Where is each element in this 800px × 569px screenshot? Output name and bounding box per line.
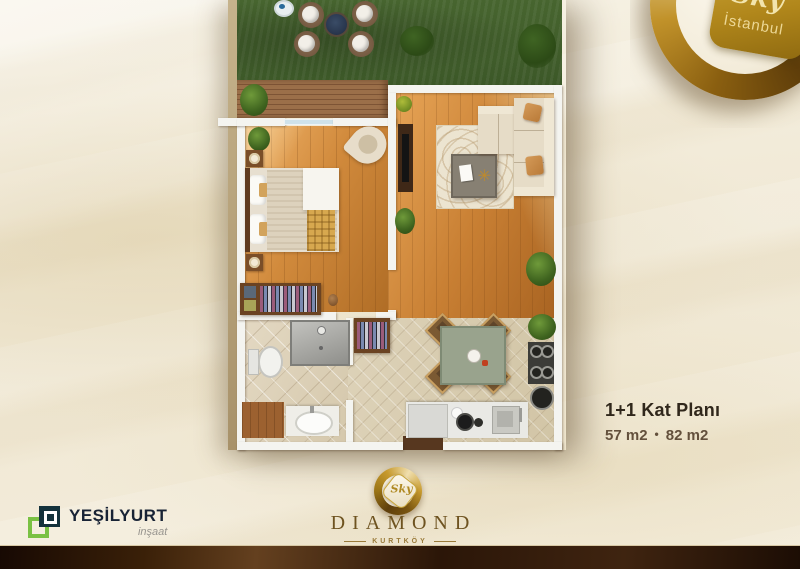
wicker-chair — [294, 31, 320, 57]
divider-line — [434, 541, 456, 542]
faucet-icon — [310, 406, 314, 413]
nightstand — [246, 150, 263, 167]
wicker-chair — [348, 31, 374, 57]
wall-bathroom-lower — [346, 400, 353, 443]
table-lamp-icon — [249, 257, 260, 268]
folded-clothes — [244, 300, 256, 311]
deck-plant — [240, 84, 268, 116]
yesilyurt-squares-icon — [28, 506, 60, 538]
round-basin — [530, 386, 554, 410]
area-separator: • — [655, 427, 659, 441]
double-bed — [245, 168, 339, 252]
floor-plan: ✳ — [228, 0, 566, 450]
table-decor — [482, 360, 488, 366]
plant-decor-icon: ✳ — [478, 166, 491, 186]
garden-side-table — [274, 0, 294, 17]
dark-square-icon — [39, 506, 60, 527]
toilet-bowl — [258, 346, 283, 378]
living-corner-plant — [526, 252, 556, 286]
sofa-pillow — [522, 102, 542, 122]
balcony-sliding-door — [285, 120, 333, 124]
garden-bush — [518, 24, 556, 68]
area-value-1: 57 m2 — [605, 427, 648, 444]
table-lamp-icon — [249, 153, 260, 164]
builder-name: YEŞİLYURT — [69, 506, 167, 526]
hanging-clothes — [357, 322, 387, 349]
builder-logo: YEŞİLYURT inşaat — [28, 506, 167, 538]
project-location-row: KURTKÖY — [318, 538, 482, 545]
poster-canvas: Sky İstanbul — [0, 0, 800, 569]
toilet — [248, 344, 282, 376]
sofa-seam — [498, 114, 499, 154]
garden-bush — [400, 26, 434, 56]
living-plant — [395, 208, 415, 234]
coffee-table: ✳ — [451, 154, 497, 198]
folded-clothes — [244, 286, 256, 298]
living-plant-small — [396, 96, 412, 112]
hallway-wardrobe — [354, 318, 390, 353]
wicker-chair — [298, 2, 324, 28]
burner-icon — [541, 345, 554, 358]
tv-unit — [398, 124, 413, 192]
builder-subtitle: inşaat — [69, 526, 167, 538]
bathroom-cabinet — [242, 402, 284, 438]
sofa-backrest — [544, 98, 554, 196]
plan-caption: 1+1 Kat Planı 57 m2•82 m2 — [605, 400, 720, 444]
wall-bedroom-top-left — [237, 118, 285, 126]
white-square-icon — [44, 511, 57, 524]
teapot-icon — [467, 349, 481, 363]
project-location: KURTKÖY — [372, 538, 428, 545]
kitchen-sink — [492, 406, 520, 434]
plan-title: 1+1 Kat Planı — [605, 400, 720, 421]
sofa-seam — [514, 130, 544, 131]
bedroom-plant — [248, 127, 270, 151]
floor-vase — [328, 294, 338, 306]
nightstand — [246, 254, 263, 271]
shower-head-icon — [317, 326, 326, 335]
builder-text: YEŞİLYURT inşaat — [69, 506, 167, 538]
pot-icon — [474, 418, 483, 427]
shower — [290, 320, 350, 366]
pot-icon — [456, 413, 474, 431]
bed-throw — [307, 210, 335, 251]
hanging-clothes — [260, 286, 317, 312]
wall-terrace-stub — [218, 118, 238, 126]
plan-area: 57 m2•82 m2 — [605, 427, 720, 444]
kitchen-counter — [406, 402, 528, 438]
wall-living-top — [388, 85, 560, 93]
bathroom-vanity — [286, 406, 339, 436]
footer-band — [0, 545, 800, 569]
divider-line — [344, 541, 366, 542]
bed-duvet — [303, 168, 339, 210]
entrance-door-mat — [403, 436, 443, 450]
plan-left-edge — [228, 0, 237, 450]
bathroom-sink — [295, 411, 333, 435]
wall-bedroom-top-right — [333, 118, 396, 126]
kitchen-plant — [528, 314, 556, 340]
wicker-chair — [352, 1, 378, 27]
tv-screen — [402, 134, 409, 182]
garden-table — [324, 12, 349, 37]
project-name: DIAMOND — [318, 512, 482, 535]
sofa-pillow — [525, 155, 544, 176]
bedroom-wardrobe — [240, 283, 321, 315]
diamond-mark-script: Sky — [391, 483, 413, 496]
drain-icon — [319, 346, 323, 350]
burner-icon — [541, 366, 554, 379]
wall-bottom-left — [237, 442, 403, 450]
wall-interior-upper — [388, 93, 396, 270]
sofa-armrest — [514, 187, 554, 196]
faucet-icon — [519, 408, 522, 422]
dining-table — [440, 326, 506, 385]
cooktop — [528, 342, 554, 384]
wall-bottom-right — [443, 442, 562, 450]
dishwasher — [408, 404, 448, 438]
sky-istanbul-badge: Sky İstanbul — [630, 0, 800, 128]
book-decor — [459, 164, 473, 182]
area-value-2: 82 m2 — [666, 427, 709, 444]
